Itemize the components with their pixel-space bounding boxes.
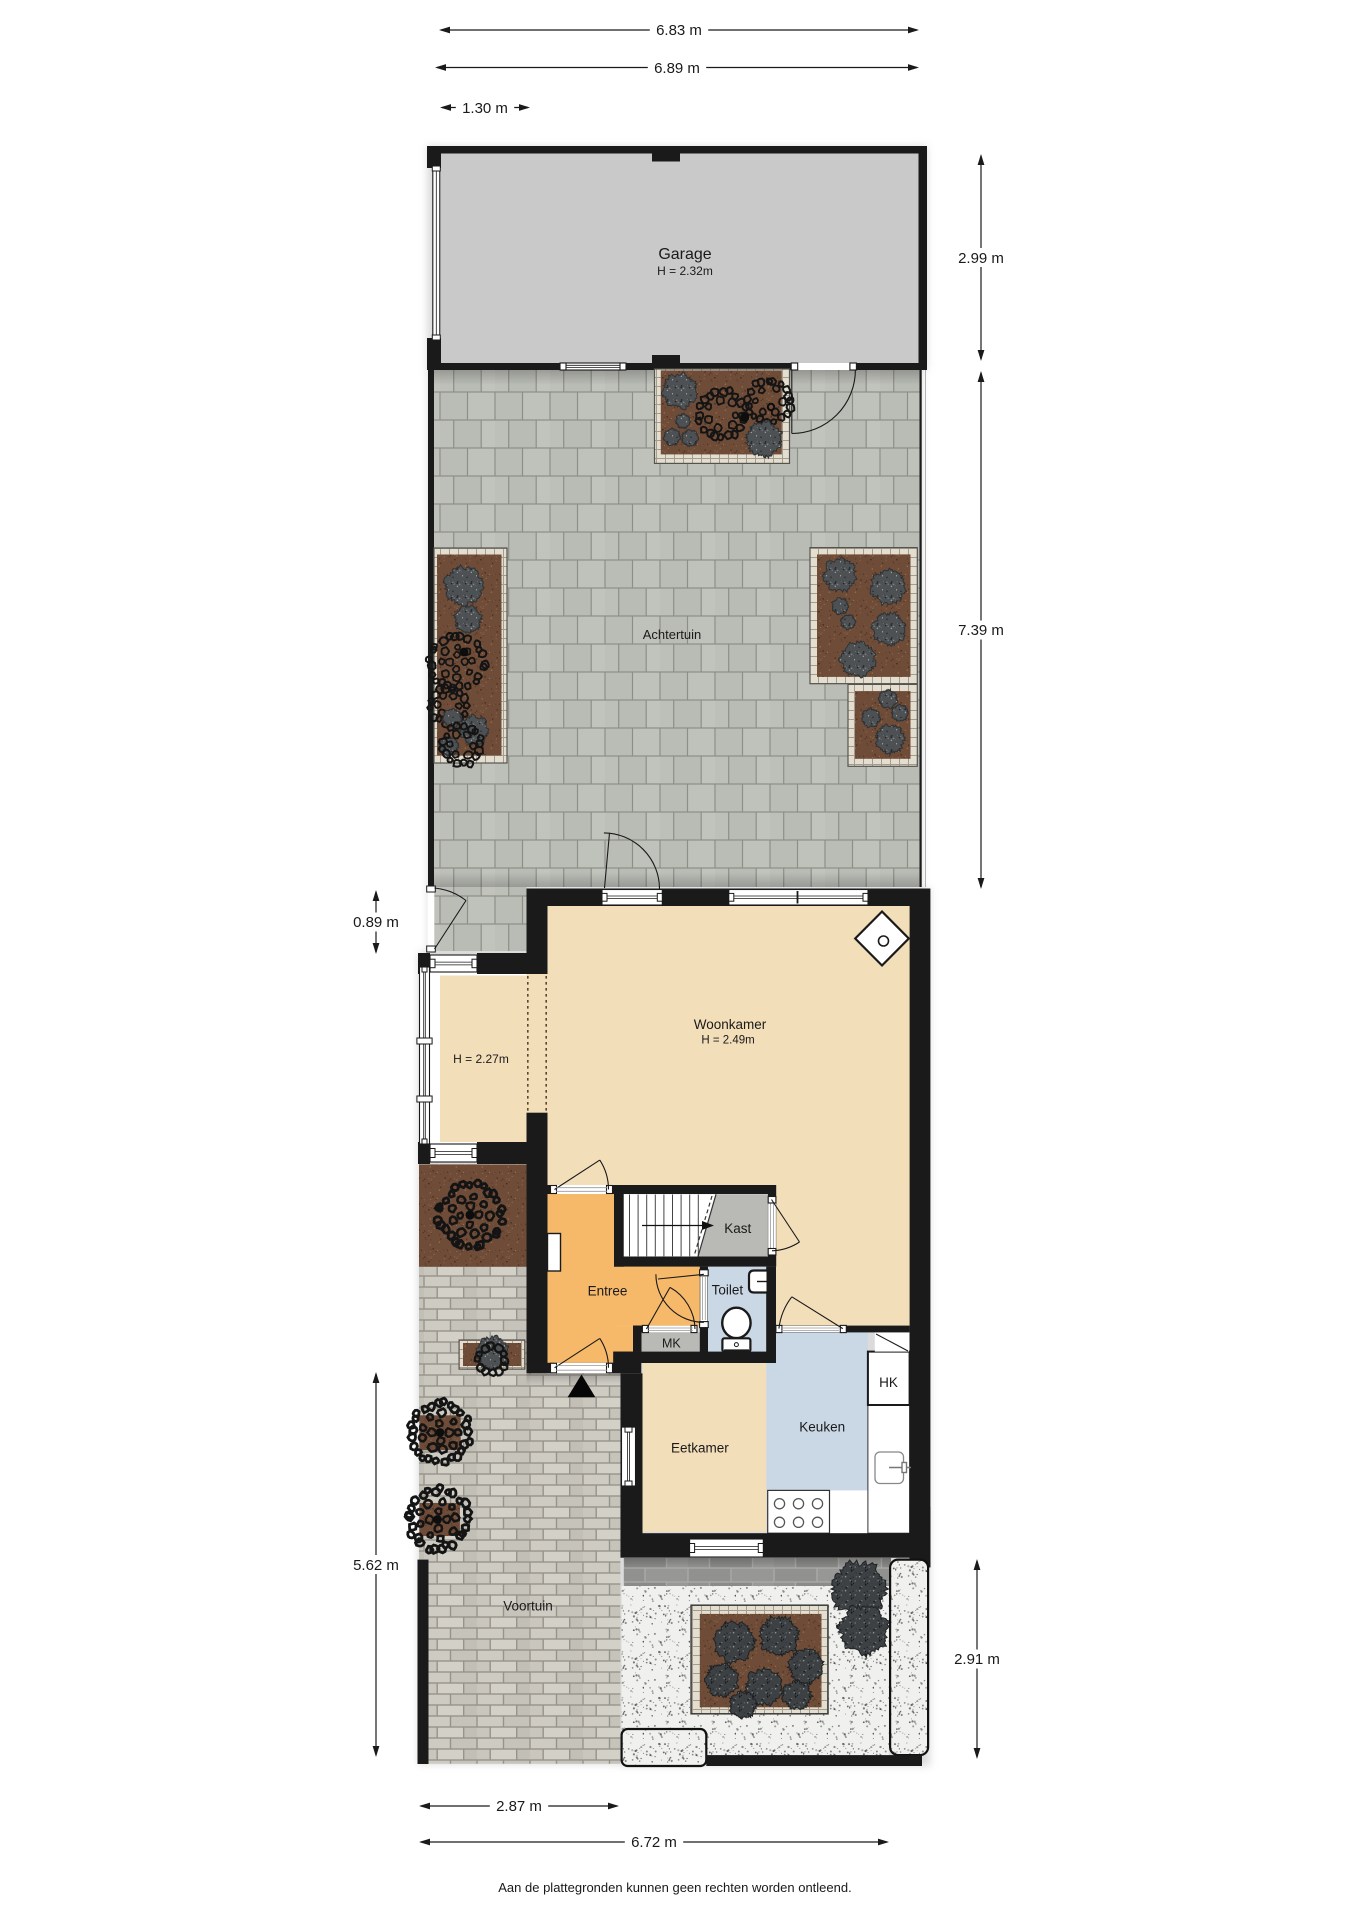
svg-text:2.99 m: 2.99 m [958, 250, 1004, 267]
svg-text:H = 2.49m: H = 2.49m [701, 1035, 754, 1047]
svg-text:Garage: Garage [658, 246, 711, 263]
svg-text:2.91 m: 2.91 m [954, 1651, 1000, 1668]
svg-text:2.87 m: 2.87 m [496, 1798, 542, 1815]
svg-text:Voortuin: Voortuin [503, 1599, 553, 1614]
svg-text:H = 2.27m: H = 2.27m [453, 1052, 509, 1066]
svg-text:Kast: Kast [724, 1221, 751, 1236]
svg-text:Achtertuin: Achtertuin [643, 627, 702, 642]
svg-text:6.72 m: 6.72 m [631, 1834, 677, 1851]
svg-text:MK: MK [662, 1337, 681, 1351]
svg-text:Woonkamer: Woonkamer [694, 1017, 767, 1032]
svg-text:6.83 m: 6.83 m [656, 22, 702, 39]
svg-text:1.30 m: 1.30 m [462, 100, 508, 117]
svg-text:H = 2.32m: H = 2.32m [657, 264, 713, 278]
svg-text:Toilet: Toilet [712, 1283, 744, 1298]
svg-text:Aan de plattegronden kunnen ge: Aan de plattegronden kunnen geen rechten… [498, 1880, 851, 1895]
svg-text:7.39 m: 7.39 m [958, 622, 1004, 639]
svg-text:6.89 m: 6.89 m [654, 60, 700, 77]
svg-text:HK: HK [879, 1375, 898, 1390]
svg-text:5.62 m: 5.62 m [353, 1557, 399, 1574]
svg-text:0.89 m: 0.89 m [353, 914, 399, 931]
svg-text:Keuken: Keuken [799, 1420, 845, 1435]
svg-text:Entree: Entree [588, 1284, 628, 1299]
svg-text:Eetkamer: Eetkamer [671, 1440, 729, 1455]
